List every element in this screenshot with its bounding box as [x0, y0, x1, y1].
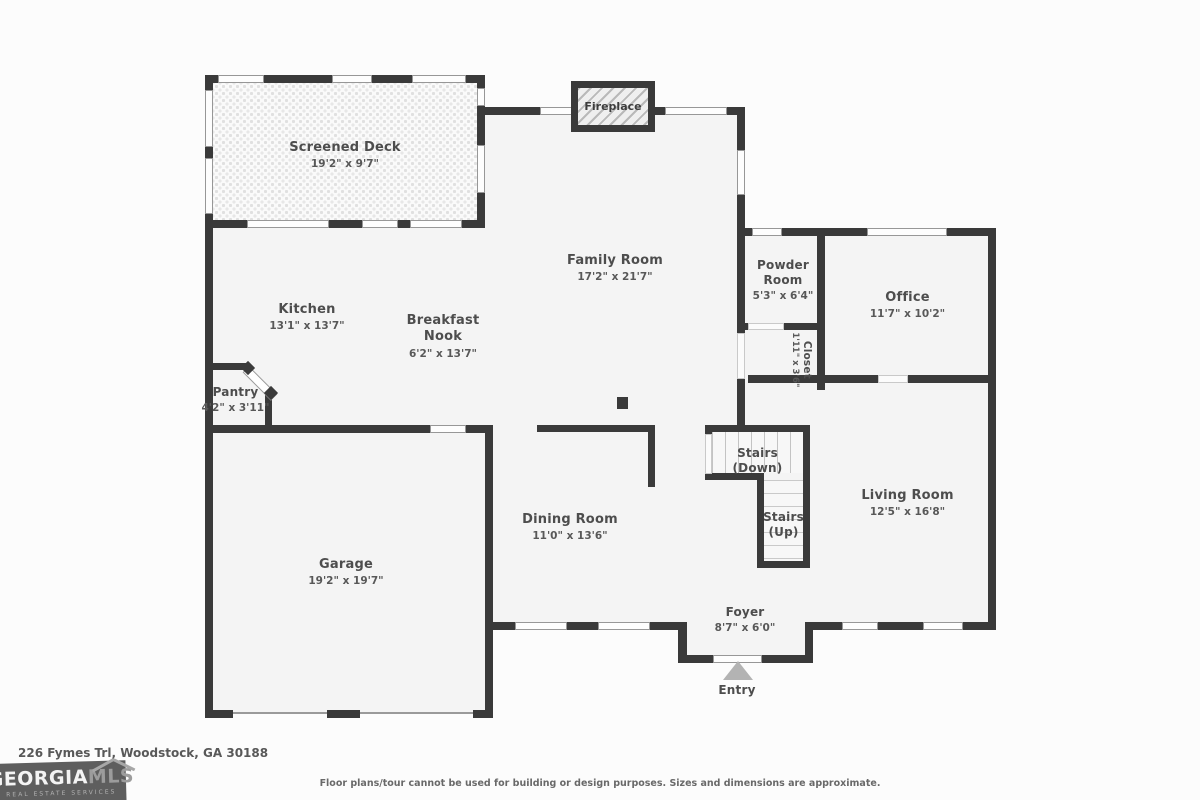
room-label-powder-room: Powder Room 5'3" x 6'4" — [738, 258, 828, 303]
disclaimer-text: Floor plans/tour cannot be used for buil… — [0, 778, 1200, 789]
room-name: Stairs (Down) — [712, 446, 803, 476]
window-marker — [247, 220, 329, 228]
wall-segment — [988, 228, 996, 630]
door-opening — [737, 333, 745, 379]
room-dims: 5'3" x 6'4" — [738, 290, 828, 303]
room-name: Family Room — [540, 253, 690, 269]
room-name: Living Room — [845, 488, 970, 504]
window-marker — [752, 228, 782, 236]
room-label-fireplace: Fireplace — [584, 100, 641, 113]
wall-segment — [757, 561, 810, 568]
wall-segment — [705, 425, 810, 432]
room-name: Garage — [286, 557, 406, 573]
wall-segment — [327, 710, 360, 718]
room-dims: 11'0" x 13'6" — [505, 530, 635, 543]
room-name: Stairs (Up) — [757, 510, 810, 540]
room-label-screened-deck: Screened Deck 19'2" x 9'7" — [255, 140, 435, 171]
wall-pillar — [617, 397, 628, 409]
door-opening — [878, 375, 908, 383]
wall-segment — [678, 655, 704, 663]
room-dims: 12'5" x 16'8" — [845, 506, 970, 519]
logo-brand: GEORGIAMLS — [0, 766, 134, 789]
room-name: Office — [845, 290, 970, 306]
fireplace-hatch: Fireplace — [578, 88, 648, 125]
window-marker — [430, 425, 466, 433]
entry-label: Entry — [707, 683, 767, 698]
wall-segment — [803, 425, 810, 568]
window-marker — [923, 622, 963, 630]
entry-arrow-icon — [723, 661, 753, 680]
floor-plan: Fireplace Screened Deck 19'2" x 9'7" Fam… — [0, 0, 1200, 800]
wall-segment — [473, 710, 493, 718]
room-label-pantry: Pantry 4'2" x 3'11" — [188, 385, 283, 415]
window-marker — [515, 622, 567, 630]
georgia-mls-logo: GEORGIAMLS REAL ESTATE SERVICES — [0, 760, 127, 800]
room-label-stairs-up: Stairs (Up) — [757, 510, 810, 540]
room-label-closet: Closet 1'11" x 3'6" — [789, 325, 813, 395]
room-label-living-room: Living Room 12'5" x 16'8" — [845, 488, 970, 519]
window-marker — [867, 228, 947, 236]
door-opening — [705, 434, 712, 474]
wall-segment — [485, 425, 493, 718]
wall-segment — [648, 425, 655, 487]
window-marker — [412, 75, 466, 83]
room-dims: 1'11" x 3'6" — [789, 325, 800, 395]
garage-door — [233, 712, 327, 714]
door-frame — [762, 655, 771, 663]
room-dims: 4'2" x 3'11" — [188, 402, 283, 415]
room-label-foyer: Foyer 8'7" x 6'0" — [695, 605, 795, 635]
floor-area-family-upper — [485, 115, 737, 236]
window-marker — [332, 75, 372, 83]
room-label-breakfast-nook: Breakfast Nook 6'2" x 13'7" — [403, 313, 483, 361]
window-marker — [737, 150, 745, 195]
room-dims: 13'1" x 13'7" — [247, 320, 367, 333]
window-marker — [218, 75, 264, 83]
window-marker — [842, 622, 878, 630]
wall-segment — [537, 425, 655, 432]
room-dims: 11'7" x 10'2" — [845, 308, 970, 321]
window-marker — [410, 220, 462, 228]
room-name: Pantry — [188, 385, 283, 400]
window-marker — [205, 158, 213, 214]
room-name: Entry — [707, 683, 767, 698]
window-marker — [205, 90, 213, 147]
window-marker — [477, 88, 485, 106]
room-name: Closet — [800, 325, 813, 395]
room-dims: 6'2" x 13'7" — [403, 348, 483, 361]
room-label-stairs-down: Stairs (Down) — [712, 446, 803, 476]
room-label-garage: Garage 19'2" x 19'7" — [286, 557, 406, 588]
property-address: 226 Fymes Trl, Woodstock, GA 30188 — [18, 746, 268, 760]
window-marker — [665, 107, 727, 115]
wall-segment — [805, 622, 996, 630]
roof-icon — [92, 757, 136, 771]
room-label-kitchen: Kitchen 13'1" x 13'7" — [247, 302, 367, 333]
logo-text-georgia: GEORGIA — [0, 766, 88, 791]
room-dims: 8'7" x 6'0" — [695, 622, 795, 635]
window-marker — [540, 107, 572, 115]
room-name: Powder Room — [738, 258, 828, 288]
room-name: Dining Room — [505, 512, 635, 528]
garage-door — [360, 712, 473, 714]
door-opening — [748, 323, 784, 330]
door-frame — [704, 655, 713, 663]
wall-segment — [817, 228, 825, 390]
room-label-dining-room: Dining Room 11'0" x 13'6" — [505, 512, 635, 543]
window-marker — [362, 220, 398, 228]
room-label-family-room: Family Room 17'2" x 21'7" — [540, 253, 690, 284]
window-marker — [598, 622, 650, 630]
room-name: Screened Deck — [255, 140, 435, 156]
room-label-office: Office 11'7" x 10'2" — [845, 290, 970, 321]
room-name: Kitchen — [247, 302, 367, 318]
room-name: Breakfast Nook — [403, 313, 483, 346]
room-dims: 19'2" x 19'7" — [286, 575, 406, 588]
room-name: Foyer — [695, 605, 795, 620]
wall-segment — [205, 710, 233, 718]
room-dims: 19'2" x 9'7" — [255, 158, 435, 171]
window-marker — [477, 145, 485, 193]
room-dims: 17'2" x 21'7" — [540, 271, 690, 284]
wall-segment — [748, 375, 996, 383]
